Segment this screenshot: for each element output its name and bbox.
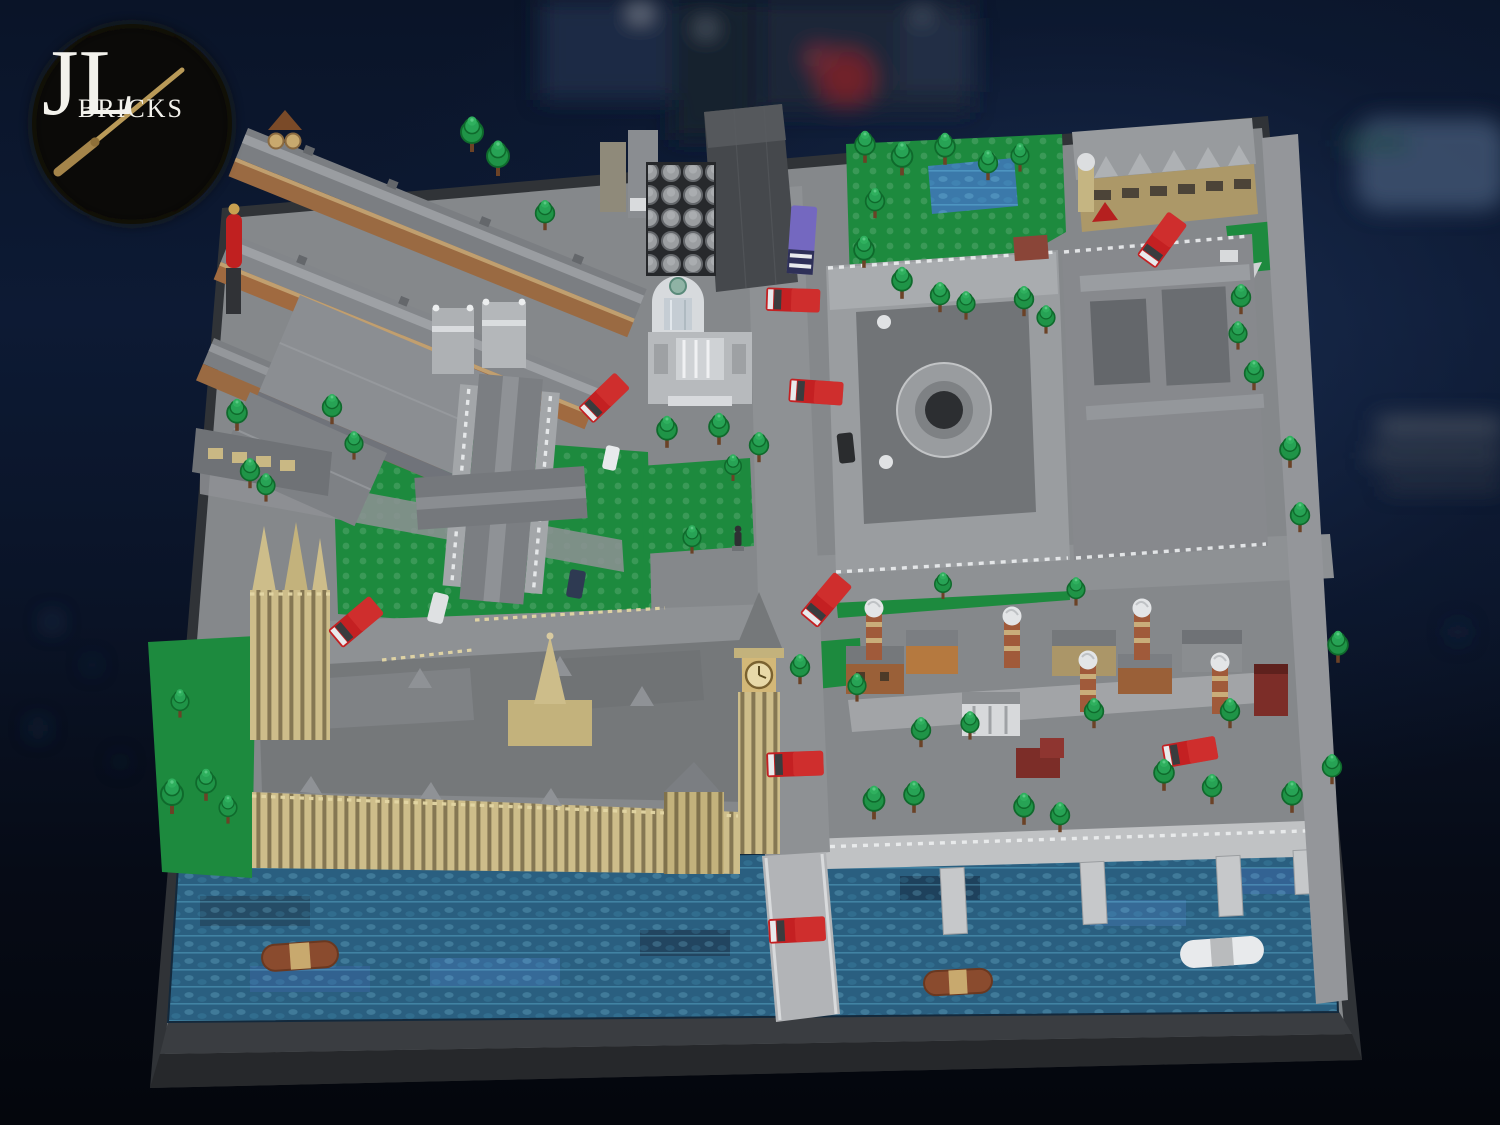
bokeh-light — [1449, 623, 1467, 641]
bokeh-light — [45, 615, 59, 629]
bokeh-light — [701, 23, 711, 33]
bokeh-red-light — [807, 47, 829, 69]
ring-courtyard-building — [826, 235, 1070, 574]
brick-dome-tower — [865, 599, 884, 661]
bokeh-building — [540, 0, 690, 100]
pier — [1216, 855, 1243, 916]
bokeh-teal-streak — [1344, 136, 1408, 151]
lego-city-render: JL BRICKS — [0, 0, 1500, 1125]
tree — [1328, 631, 1348, 663]
tree — [461, 116, 483, 152]
column-stacks — [648, 165, 714, 273]
village-house — [906, 630, 958, 674]
bokeh-glow — [1356, 118, 1500, 210]
white-roof-block — [1220, 250, 1238, 262]
bokeh-light — [917, 9, 927, 19]
red-bus — [768, 916, 826, 944]
tan-tower — [600, 142, 626, 212]
corner-dome — [1077, 153, 1095, 171]
water-texture — [168, 842, 1344, 1024]
white-cone — [879, 455, 893, 469]
brick-dome-tower — [1133, 599, 1152, 661]
government-building-east — [1062, 234, 1268, 560]
logo-word: BRICKS — [78, 94, 184, 123]
glass-dome-theatre — [652, 276, 704, 332]
brown-boat — [261, 940, 339, 971]
east-courtyard — [1162, 286, 1231, 385]
tree — [487, 140, 509, 176]
white-cone — [877, 315, 891, 329]
dark-red-house — [1254, 664, 1288, 716]
red-bus — [788, 378, 844, 405]
classical-portico-building — [648, 332, 752, 406]
bokeh-light — [634, 6, 646, 18]
brown-boat — [923, 968, 992, 996]
white-boat — [1179, 935, 1265, 969]
red-train — [226, 204, 242, 315]
log-pile-detail — [268, 110, 302, 149]
red-bus — [766, 287, 821, 312]
purple-bus — [787, 205, 818, 275]
red-bus — [766, 751, 824, 778]
bokeh-streak — [1368, 448, 1500, 463]
bokeh-light — [30, 720, 46, 736]
water-wave-pattern — [168, 842, 1344, 1024]
bokeh-light — [115, 757, 125, 767]
jl-bricks-logo: JL BRICKS — [32, 24, 232, 224]
thames-river — [168, 842, 1344, 1024]
wand-knob — [90, 137, 99, 146]
park-pond-waves — [928, 158, 1018, 214]
corner-pillar — [1078, 164, 1094, 212]
northeast-tan-building — [1072, 118, 1258, 232]
brick-rooftop-box — [1013, 235, 1049, 261]
east-courtyard — [1090, 299, 1150, 386]
bokeh-building — [900, 18, 974, 92]
brick-dome-tower — [1003, 607, 1022, 669]
riverside-green-west — [148, 636, 256, 878]
pier — [940, 867, 967, 934]
pier — [1080, 861, 1107, 924]
bokeh-light — [87, 660, 97, 670]
teal-dome — [670, 278, 686, 294]
black-car — [836, 432, 855, 464]
ring-hole — [925, 391, 963, 429]
bokeh-streak — [1378, 418, 1500, 435]
bokeh-streak — [1384, 477, 1500, 490]
